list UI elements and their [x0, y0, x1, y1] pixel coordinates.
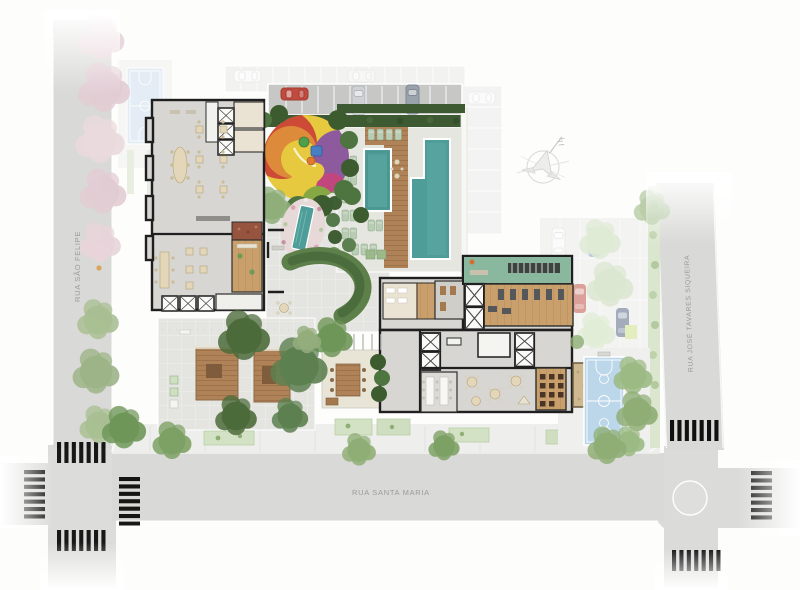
outdoor-dining-table: [336, 364, 360, 396]
elevator: [515, 333, 534, 350]
elevator: [515, 350, 534, 367]
street-bottom: [112, 453, 664, 521]
car-white: [552, 228, 565, 257]
street-label-bottom: RUA SANTA MARIA: [352, 488, 430, 497]
play-equipment: [311, 146, 322, 156]
car-white: [234, 70, 261, 82]
elevator: [421, 333, 440, 351]
elevator: [198, 296, 214, 311]
party-room: [421, 372, 457, 412]
elevator: [162, 296, 178, 311]
elevator: [218, 108, 234, 123]
hedge-row: [337, 104, 465, 113]
car-white: [348, 70, 375, 82]
neighbor-stall-column: [462, 86, 502, 234]
elevator: [218, 140, 234, 155]
car-red: [281, 88, 308, 100]
roundabout-island: [673, 481, 707, 515]
building-central-block: [380, 256, 573, 412]
building-left-wing: [146, 100, 264, 311]
street-label-left: RUA SÃO FELIPE: [73, 231, 82, 302]
car-white: [468, 92, 495, 104]
elevator: [465, 307, 484, 330]
north-arrow-compass: [516, 128, 575, 188]
elevator: [180, 296, 196, 311]
elevator: [465, 284, 484, 307]
wine-cellar: [536, 368, 566, 410]
car-red: [573, 284, 586, 313]
site-plan: RUA SÃO FELIPE RUA JOSÉ TAVARES SIQUEIRA…: [0, 0, 800, 590]
